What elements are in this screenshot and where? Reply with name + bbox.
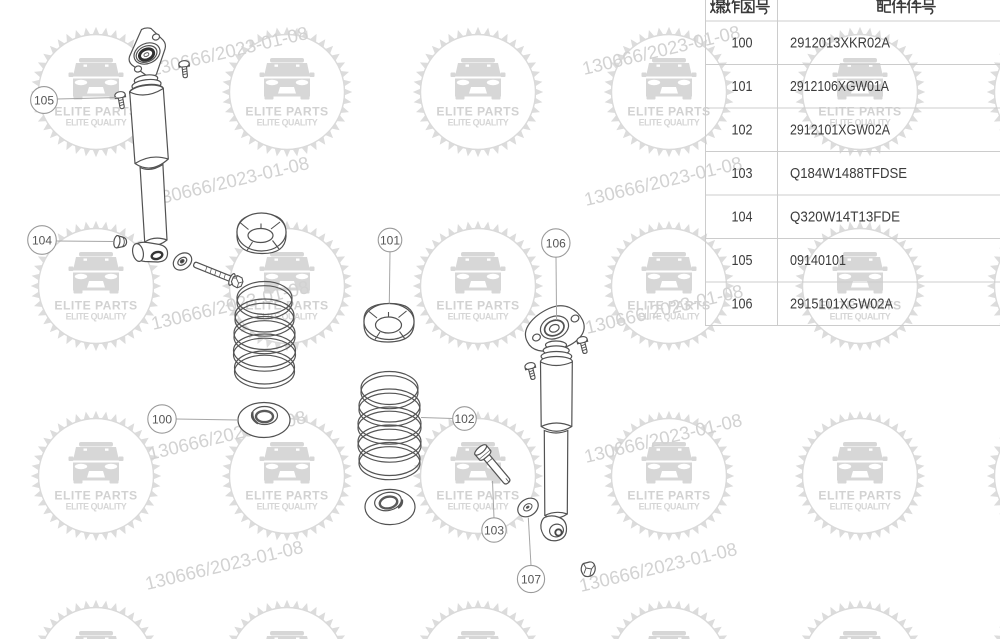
svg-text:101: 101 bbox=[732, 78, 753, 95]
svg-text:102: 102 bbox=[454, 412, 474, 426]
svg-text:107: 107 bbox=[521, 572, 541, 586]
svg-text:2912101XGW02A: 2912101XGW02A bbox=[790, 122, 890, 139]
svg-text:103: 103 bbox=[732, 165, 753, 182]
svg-text:2912106XGW01A: 2912106XGW01A bbox=[790, 78, 889, 95]
svg-text:2912013XKR02A: 2912013XKR02A bbox=[790, 35, 890, 52]
svg-text:106: 106 bbox=[732, 296, 753, 313]
svg-text:104: 104 bbox=[32, 233, 52, 247]
svg-text:Q184W1488TFDSE: Q184W1488TFDSE bbox=[790, 165, 907, 182]
svg-text:105: 105 bbox=[34, 93, 54, 107]
svg-text:104: 104 bbox=[732, 209, 753, 226]
svg-text:102: 102 bbox=[732, 122, 753, 139]
svg-text:100: 100 bbox=[732, 35, 753, 52]
svg-text:103: 103 bbox=[484, 523, 504, 537]
svg-text:100: 100 bbox=[152, 412, 172, 426]
svg-text:09140101: 09140101 bbox=[790, 252, 846, 269]
svg-text:2915101XGW02A: 2915101XGW02A bbox=[790, 296, 893, 313]
svg-text:Q320W14T13FDE: Q320W14T13FDE bbox=[790, 209, 900, 226]
svg-text:106: 106 bbox=[546, 236, 566, 250]
svg-text:101: 101 bbox=[380, 233, 400, 247]
svg-text:105: 105 bbox=[732, 252, 753, 269]
